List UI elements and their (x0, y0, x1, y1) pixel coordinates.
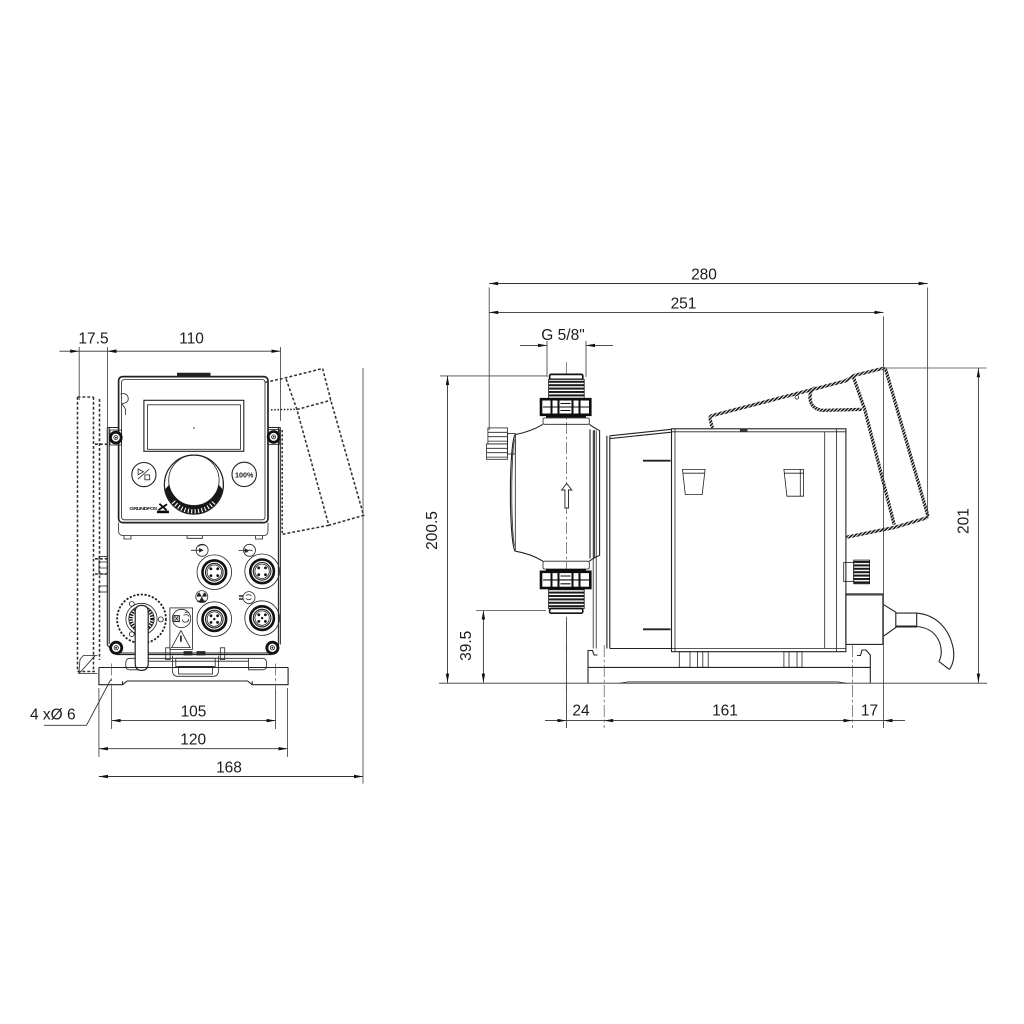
svg-text:G 5/8": G 5/8" (541, 327, 584, 344)
svg-text:201: 201 (956, 508, 973, 534)
svg-text:200.5: 200.5 (424, 511, 441, 550)
svg-text:251: 251 (671, 295, 697, 312)
svg-text:120: 120 (180, 731, 206, 748)
svg-text:100%: 100% (235, 471, 254, 480)
svg-text:105: 105 (181, 704, 207, 721)
svg-text:17: 17 (861, 703, 878, 720)
svg-text:4 xØ 6: 4 xØ 6 (30, 707, 76, 724)
svg-text:24: 24 (572, 703, 590, 720)
svg-text:39.5: 39.5 (458, 631, 475, 661)
svg-text:110: 110 (179, 331, 204, 348)
svg-text:GRUNDFOS: GRUNDFOS (129, 507, 158, 512)
svg-text:161: 161 (712, 703, 738, 720)
svg-text:168: 168 (216, 759, 242, 776)
svg-text:17.5: 17.5 (78, 331, 108, 348)
svg-text:280: 280 (691, 267, 717, 284)
